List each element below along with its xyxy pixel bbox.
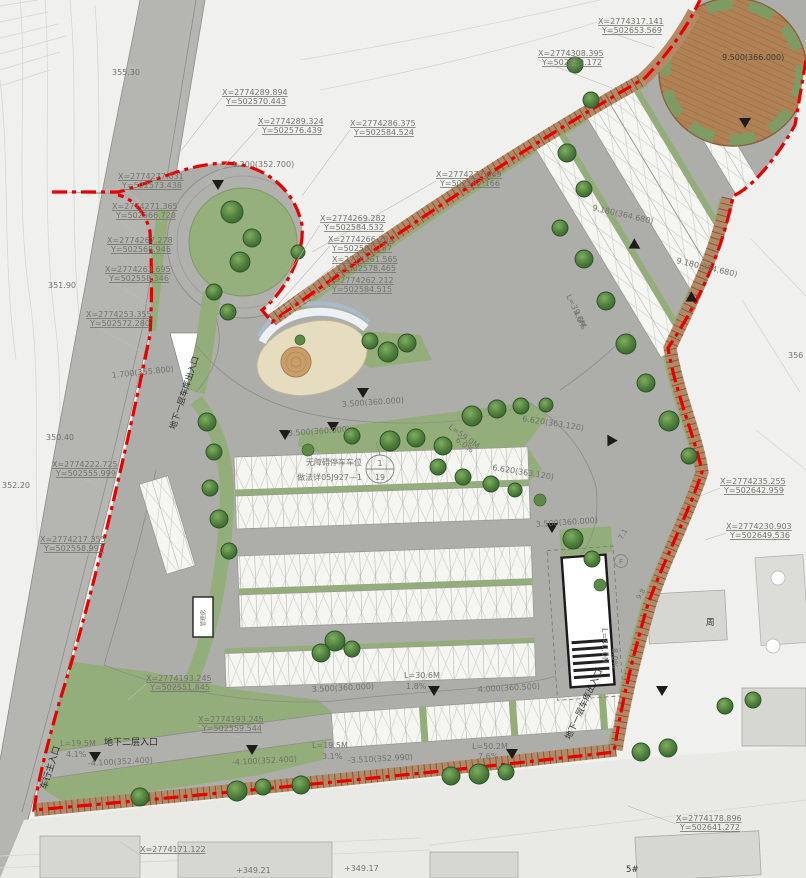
coord-x: X=2774289.324 [258, 117, 324, 126]
slope-length: L=19.5M [60, 739, 96, 748]
elevation-label: 1.200(352.700) [232, 160, 294, 169]
coord-y: Y=502573.438 [121, 181, 182, 190]
coord-x: X=2774217.355 [40, 535, 106, 544]
offsite-marker [766, 639, 780, 653]
coord-y: Y=502558.346 [108, 274, 169, 283]
coord-x: X=2774269.282 [320, 214, 386, 223]
coord-y: Y=502581.187 [331, 244, 392, 253]
detail-number: 1 [377, 459, 382, 468]
slope-length: L=50.2M [472, 742, 508, 751]
basement-level2-entrance-label: 地下二层入口 [104, 736, 158, 748]
coord-x: X=2774222.725 [52, 460, 118, 469]
coord-x: X=2774286.375 [350, 119, 416, 128]
coord-y: Y=502653.569 [601, 26, 662, 35]
coord-y: Y=502558.997 [43, 544, 104, 553]
offsite-building [755, 554, 806, 645]
building-label: 5# [626, 865, 639, 875]
coord-y: Y=502578.465 [335, 264, 396, 273]
coord-y: Y=502641.272 [679, 823, 740, 832]
slope-length: L=30.6M [404, 671, 440, 680]
spot-elevation: 356 [788, 351, 803, 360]
slope-length: L=40.0M [600, 628, 609, 664]
offsite-building [635, 831, 761, 878]
spot-elevation: 350.40 [46, 433, 74, 442]
coord-y: Y=502570.443 [225, 97, 286, 106]
coord-x: X=2774235.255 [720, 477, 786, 486]
coord-x: X=2774271.365 [112, 202, 178, 211]
coord-y: Y=502649.536 [729, 531, 790, 540]
detail-caption: 做法详05J927—1 [297, 472, 362, 482]
coord-x: X=2774178.896 [676, 814, 742, 823]
coord-x: X=2774266.262 [328, 235, 394, 244]
slope-grade: 7.6% [478, 752, 499, 761]
offsite-building [40, 836, 140, 878]
guard-room-label: 管理房 [199, 609, 207, 626]
coord-x: X=2774267.278 [107, 236, 173, 245]
coord-y: Y=502649.172 [541, 58, 602, 67]
site-plan-page: X=2774289.894Y=502570.443 X=2774289.324Y… [0, 0, 806, 878]
coord-x: X=2774308.395 [538, 49, 604, 58]
coord-y: Y=502568.946 [110, 245, 171, 254]
spot-elevation: 352.20 [2, 481, 30, 490]
coord-x: X=2774253.355 [86, 310, 152, 319]
coord-y: Y=502584.515 [331, 285, 392, 294]
spot-elevation: 355.30 [112, 68, 140, 77]
coord-y: Y=502559.544 [201, 724, 262, 733]
slope-grade: 8.0% [610, 648, 619, 669]
coord-y: Y=502572.280 [89, 319, 150, 328]
coord-x: X=2774262.212 [328, 276, 394, 285]
coord-x: X=2774277.631 [118, 172, 184, 181]
coord-y: Y=502576.439 [261, 126, 322, 135]
coord-y: Y=502584.532 [323, 223, 384, 232]
grid-letter: F [619, 558, 623, 566]
coord-x: X=2774317.141 [598, 17, 664, 26]
elevation-label: 9.500(366.000) [722, 53, 784, 62]
spot-elevation: +349.17 [344, 864, 379, 873]
slope-grade: 4.1% [66, 750, 87, 759]
slope-grade: 1.8% [406, 682, 427, 691]
spot-elevation: 351.90 [48, 281, 76, 290]
coord-y: Y=502587.166 [439, 179, 500, 188]
coord-x: X=2774277.849 [436, 170, 502, 179]
coord-x: X=2774171.122 [140, 845, 206, 854]
offsite-marker [771, 571, 785, 585]
coord-y: Y=502584.524 [353, 128, 414, 137]
detail-caption: 无障碍停车车位 [306, 457, 362, 467]
slope-grade: 3.1% [322, 752, 343, 761]
slope-length: L=19.5M [312, 741, 348, 750]
coord-x: X=2774261.565 [332, 255, 398, 264]
coord-x: X=2774193.245 [146, 674, 212, 683]
coord-x: X=2774193.245 [198, 715, 264, 724]
building-label: 周 [706, 618, 715, 628]
spot-elevation: +349.21 [236, 866, 271, 875]
site-plan-canvas: X=2774289.894Y=502570.443 X=2774289.324Y… [0, 0, 806, 878]
coord-x: X=2774263.695 [105, 265, 171, 274]
coord-y: Y=502555.999 [55, 469, 116, 478]
offsite-building [430, 852, 518, 878]
coord-y: Y=502566.728 [115, 211, 176, 220]
coord-y: Y=502551.845 [149, 683, 210, 692]
coord-y: Y=502642.959 [723, 486, 784, 495]
detail-sheet: 19 [375, 473, 385, 482]
coord-x: X=2774230.903 [726, 522, 792, 531]
coord-x: X=2774289.894 [222, 88, 288, 97]
